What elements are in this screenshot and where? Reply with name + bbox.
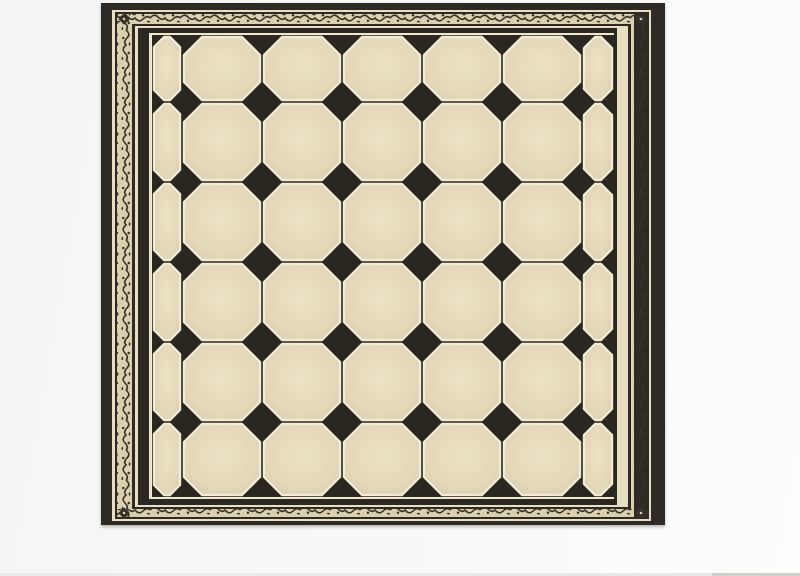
octagon-tile xyxy=(584,264,612,340)
octagon-tile xyxy=(344,104,420,180)
octagon-tile xyxy=(184,424,260,495)
octagon-tile xyxy=(264,37,340,100)
octagon-tile xyxy=(424,184,500,260)
octagon-tile xyxy=(504,104,580,180)
octagon-tile xyxy=(504,37,580,100)
octagon-tile xyxy=(264,424,340,495)
octagon-tile xyxy=(264,344,340,420)
octagon-tile xyxy=(264,104,340,180)
page xyxy=(0,0,800,576)
octagon-tile xyxy=(154,184,180,260)
octagon-tile xyxy=(344,424,420,495)
octagon-tile xyxy=(264,184,340,260)
octagon-tile xyxy=(154,264,180,340)
octagon-tile xyxy=(344,184,420,260)
octagon-tile xyxy=(584,344,612,420)
octagon-tile xyxy=(424,37,500,100)
tile-field xyxy=(152,35,614,497)
octagon-tile xyxy=(424,264,500,340)
octagon-tile xyxy=(584,37,612,100)
octagon-tile xyxy=(154,104,180,180)
octagon-tile xyxy=(184,37,260,100)
octagon-tile xyxy=(184,104,260,180)
octagon-tile xyxy=(154,424,180,495)
octagon-tile xyxy=(344,37,420,100)
octagon-tile xyxy=(504,344,580,420)
ornament-scrollwork xyxy=(117,14,132,517)
tile-artwork xyxy=(0,0,800,576)
ornament-scrollwork xyxy=(634,14,649,517)
octagon-tile xyxy=(184,184,260,260)
octagon-tile xyxy=(504,424,580,495)
octagon-tile xyxy=(424,344,500,420)
octagon-tile xyxy=(344,344,420,420)
octagon-tile xyxy=(154,37,180,100)
octagon-tile xyxy=(504,184,580,260)
ornament-scrollwork xyxy=(117,509,649,517)
octagon-tile xyxy=(424,104,500,180)
octagon-tile xyxy=(184,344,260,420)
ornament-scrollwork xyxy=(117,14,649,24)
octagon-tile xyxy=(504,264,580,340)
octagon-tile xyxy=(584,424,612,495)
octagon-tile xyxy=(154,344,180,420)
octagon-tile xyxy=(584,184,612,260)
octagon-tile xyxy=(584,104,612,180)
octagon-tile xyxy=(344,264,420,340)
octagon-tile xyxy=(424,424,500,495)
octagon-tile xyxy=(184,264,260,340)
octagon-tile xyxy=(264,264,340,340)
